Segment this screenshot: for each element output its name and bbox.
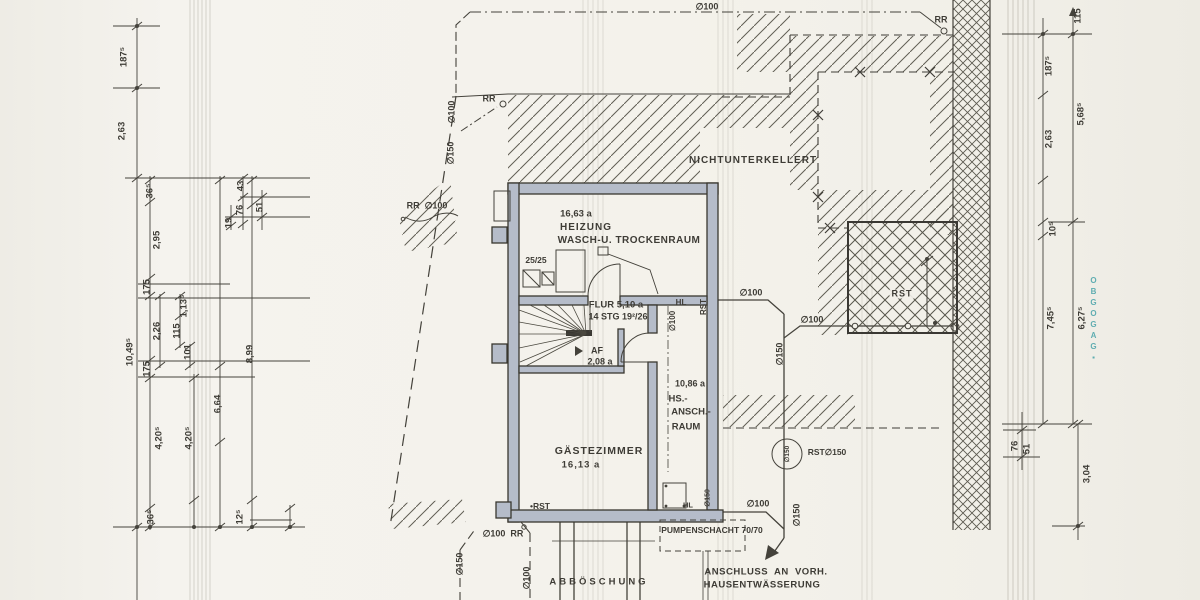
note-anschluss-2: HAUSENTWÄSSERUNG [704, 580, 821, 590]
dim-left-4205-b: 4,20⁵ [184, 427, 194, 450]
rr-top-left: RR [483, 95, 496, 104]
dim-left-263: 2,63 [117, 122, 127, 141]
dim-left-101: 101 [183, 344, 193, 360]
pipe-150-bottom-left: ∅150 [456, 553, 465, 576]
rr-100-left: RR ∅100 [407, 202, 448, 211]
dim-left-10495: 10,49⁵ [125, 338, 135, 366]
dim-left-19: 19 [224, 218, 234, 229]
rst-150-label: RST∅150 [808, 448, 847, 457]
dim-left-899: 8,99 [245, 345, 255, 364]
dim-left-1875: 187⁵ [119, 47, 129, 67]
dim-left-295: 2,95 [152, 231, 162, 250]
pipe-150-hs: ∅150 [705, 489, 712, 507]
dim-right-263: 2,63 [1044, 130, 1054, 149]
rst-terrace: RST [890, 290, 915, 299]
room-hs-1: HS.- [669, 394, 688, 404]
room-hs-2: ANSCH.- [671, 407, 711, 417]
room-heizung-area: 16,63 a [560, 209, 592, 219]
dim-right-304: 3,04 [1082, 465, 1092, 484]
pipe-100-top: ∅100 [696, 3, 719, 12]
dim-left-226: 2,26 [152, 322, 162, 341]
pipe-100-left: ∅100 [448, 101, 457, 124]
dim-left-76: 76 [235, 205, 245, 216]
note-anschluss-1: ANSCHLUSS AN VORH. [704, 567, 827, 577]
pipe-150-left: ∅150 [447, 142, 456, 165]
pipe-100-rr-bottom: ∅100 RR [483, 530, 524, 539]
stamp-text: OBGOGAG▪ [1089, 276, 1097, 364]
rst-wall: RST [700, 299, 708, 315]
hl-top: HL [676, 299, 687, 307]
dim-right-5685: 5,68⁵ [1076, 103, 1086, 126]
rr-top-right: RR [935, 16, 948, 25]
pipe-100-hs: ∅100 [669, 311, 677, 331]
dim-left-1135: 1,13⁵ [179, 295, 189, 318]
dim-right-1875: 187⁵ [1044, 56, 1054, 76]
pipe-100-bottom-left: ∅100 [523, 567, 532, 590]
dim-left-175-b: 175 [142, 361, 152, 377]
stair-note: 14 STG 19²/26 [588, 313, 647, 322]
dim-left-365-bottom: 36⁵ [146, 509, 156, 524]
dim-right-51: 51 [1022, 444, 1032, 455]
pipe-100-right-b: ∅100 [801, 316, 824, 325]
dim-left-115: 115 [172, 323, 182, 338]
chimney-size: 25/25 [525, 256, 546, 265]
rst-150-circle-text: ∅150 [785, 446, 792, 463]
room-hs-area: 10,86 a [675, 380, 705, 389]
floor-plan-scan: 187⁵2,6336⁵437619512,951752,261,13⁵11510… [0, 0, 1200, 600]
room-gaeste-area: 16,13 a [562, 460, 601, 470]
dim-right-6275: 6,27⁵ [1077, 307, 1087, 330]
pipe-100-bottom-right: ∅100 [747, 500, 770, 509]
pipe-150-right: ∅150 [776, 343, 785, 366]
dim-left-365-top: 36⁵ [145, 183, 155, 198]
pumpenschacht: PUMPENSCHACHT 70/70 [661, 526, 763, 535]
room-heizung-name: HEIZUNG [560, 223, 612, 233]
note-abboeschung: ABBÖSCHUNG [549, 577, 648, 587]
pipe-150-bottom-right: ∅150 [793, 504, 802, 527]
room-heizung-name2: WASCH-U. TROCKENRAUM [558, 236, 701, 246]
dim-left-125: 12⁵ [235, 509, 245, 524]
room-af-area: 2,08 a [587, 358, 612, 367]
room-hs-3: RAUM [672, 422, 701, 432]
dim-right-7455: 7,45⁵ [1046, 307, 1056, 330]
room-flur: FLUR 5,10 a [589, 300, 643, 310]
dim-left-664: 6,64 [213, 395, 223, 414]
plan-labels: 187⁵2,6336⁵437619512,951752,261,13⁵11510… [0, 0, 1200, 600]
dim-left-4205-a: 4,20⁵ [154, 427, 164, 450]
dim-left-43: 43 [236, 181, 246, 192]
dim-right-76: 76 [1010, 441, 1020, 452]
note-nichtunterkellert: NICHTUNTERKELLERT [689, 156, 817, 166]
room-af: AF [591, 347, 603, 356]
dim-left-51: 51 [255, 202, 265, 213]
rst-gaeste: •RST [530, 502, 550, 511]
dim-right-105: 10⁵ [1048, 221, 1058, 236]
dim-right-115: 115 [1073, 8, 1083, 23]
pipe-100-right-a: ∅100 [740, 289, 763, 298]
hl-bottom: HL [683, 501, 693, 509]
dim-left-175-a: 175 [142, 279, 152, 295]
room-gaeste: GÄSTEZIMMER [555, 446, 644, 457]
